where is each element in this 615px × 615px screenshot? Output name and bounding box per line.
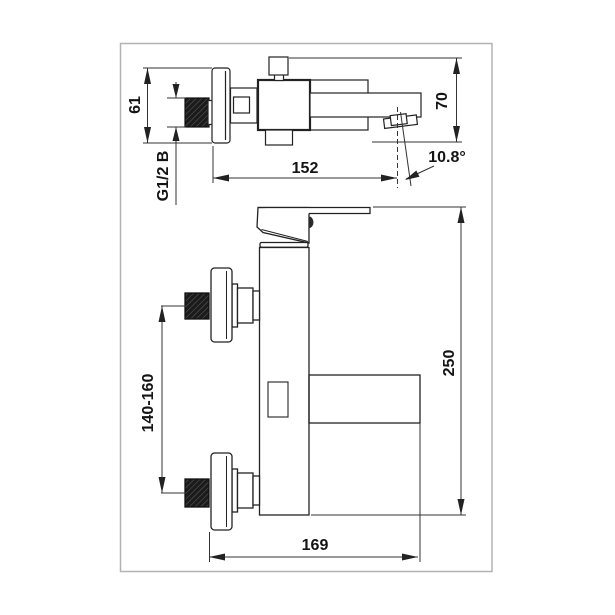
arrowhead [213,175,229,182]
arrowhead [173,84,180,98]
front-inlet-bottom [185,453,260,530]
front-inlet-top [185,268,260,342]
top-view [185,57,421,145]
angle-arrowhead [405,171,420,181]
arrowhead [453,58,460,74]
dim-inlet-spacing [159,306,187,493]
top-union-face [234,97,250,113]
inlet-thread [185,293,209,319]
cartridge-collar [260,243,308,248]
top-body [258,80,310,130]
top-diverter-tab [266,130,293,145]
technical-drawing-page: 61 G1/2 B 152 70 10.8° 140-160 250 169 [0,0,615,615]
union-barrel [238,288,254,323]
arrowhead [173,127,180,141]
arrowhead [458,207,465,223]
dim-label-thread-size: G1/2 B [156,151,172,202]
dim-label-spout-angle: 10.8° [428,150,466,166]
arrowhead [159,477,166,493]
top-escutcheon [212,68,230,143]
handle-pivot-dot [309,217,314,229]
arrowhead [144,127,151,143]
front-body [260,248,310,516]
union-flange [232,284,238,327]
dim-label-inlet-spacing: 140-160 [141,374,157,433]
dim-label-escutcheon-diameter: 61 [128,96,144,114]
union-collar [253,476,260,505]
drawing-linework [0,0,615,615]
aerator-face [390,114,407,126]
dim-label-overall-height: 250 [442,350,458,377]
arrowhead [458,499,465,515]
front-view [185,208,420,531]
arrowhead [209,554,225,561]
dim-label-spout-height: 70 [435,92,451,110]
union-flange [232,469,238,512]
arrowhead [453,126,460,142]
inlet-escutcheon [211,453,232,530]
top-wall-thread [185,98,209,127]
arrowhead [402,554,418,561]
inlet-escutcheon [211,268,232,342]
arrowhead [144,68,151,84]
union-collar [253,291,260,320]
arrowhead [381,175,397,182]
handle-base [257,208,309,244]
arrowhead [159,306,166,322]
top-handle-knob [269,57,288,75]
union-barrel [238,473,254,508]
front-spout [309,375,420,423]
dim-label-spout-reach: 152 [292,161,319,177]
inlet-thread [185,479,209,507]
dim-label-overall-depth: 169 [302,538,329,554]
